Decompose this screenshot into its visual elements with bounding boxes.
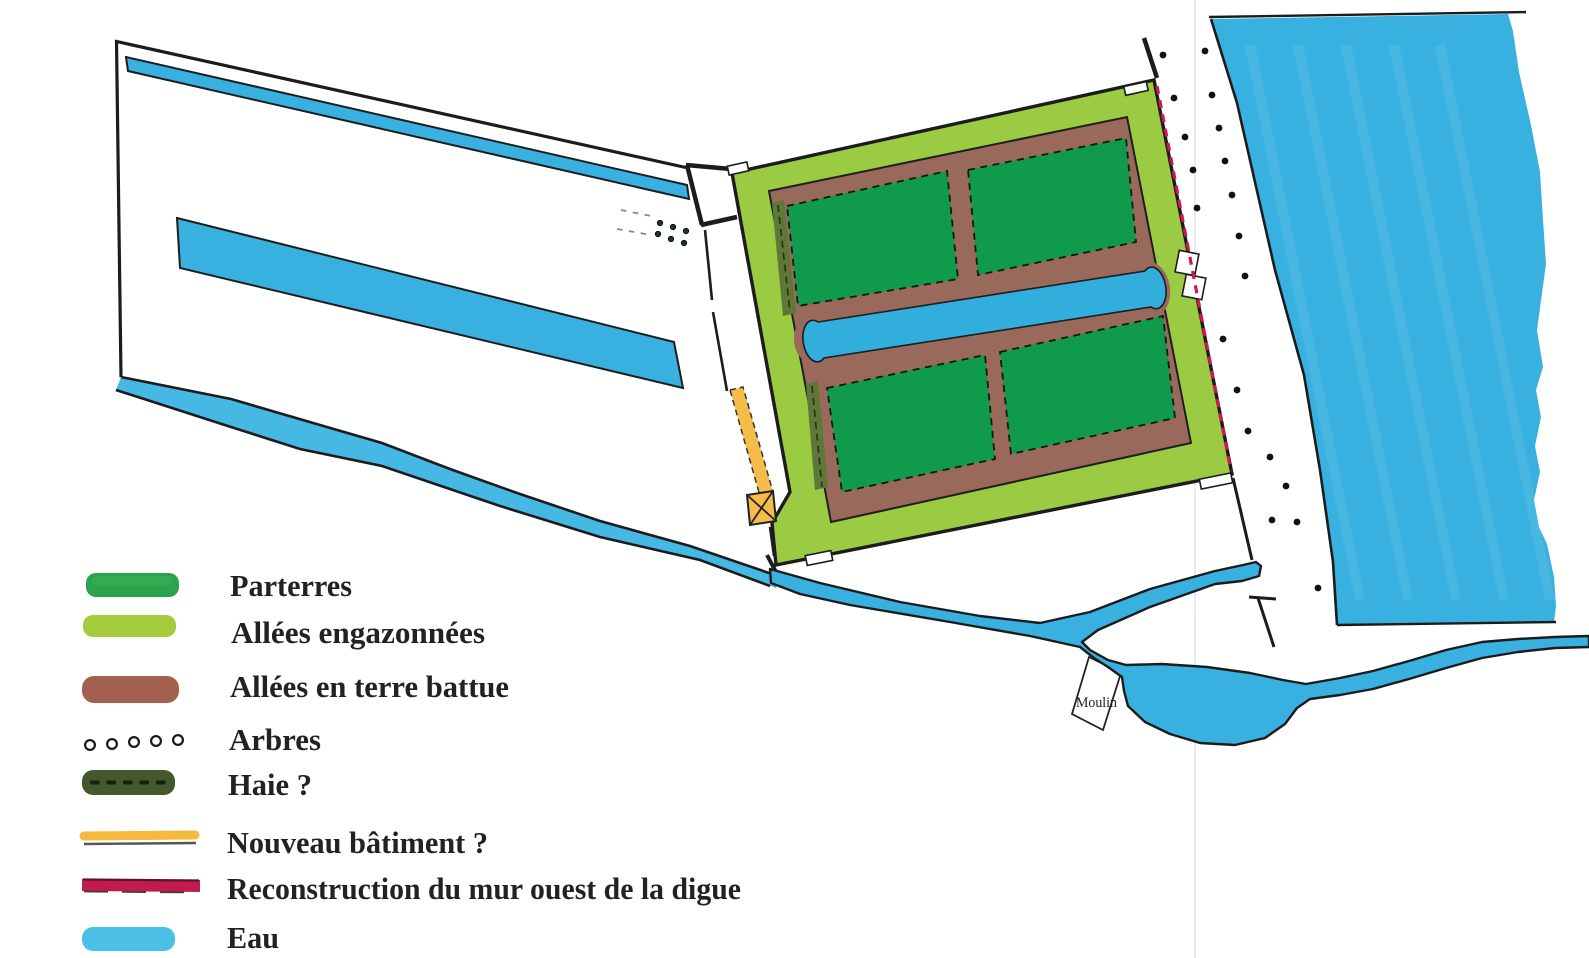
svg-text:Haie ?: Haie ?	[228, 767, 312, 802]
svg-text:Allées en terre battue: Allées en terre battue	[230, 669, 509, 704]
svg-text:Moulin: Moulin	[1076, 695, 1118, 711]
svg-text:Eau: Eau	[227, 920, 279, 955]
svg-text:Nouveau bâtiment ?: Nouveau bâtiment ?	[227, 825, 488, 860]
svg-text:Arbres: Arbres	[229, 722, 321, 757]
svg-text:Allées engazonnées: Allées engazonnées	[231, 615, 485, 650]
svg-text:Parterres: Parterres	[230, 568, 352, 603]
svg-text:Reconstruction du mur ouest de: Reconstruction du mur ouest de la digue	[227, 871, 741, 906]
